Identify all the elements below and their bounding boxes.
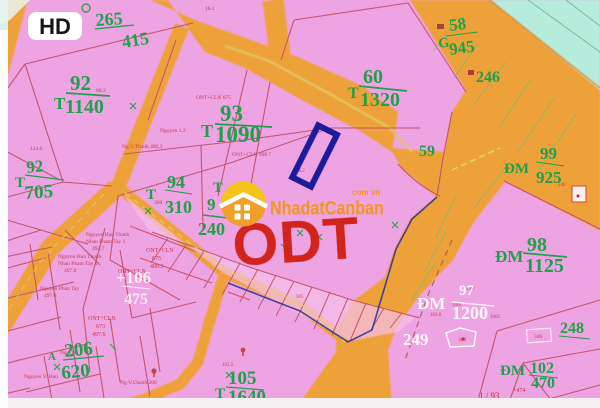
svg-text:705: 705 bbox=[24, 181, 54, 204]
svg-text:305: 305 bbox=[296, 295, 304, 300]
svg-text:60: 60 bbox=[363, 66, 383, 88]
svg-text:Nguyen Phan Tay: Nguyen Phan Tay bbox=[40, 286, 79, 292]
svg-text:246: 246 bbox=[476, 69, 500, 86]
svg-text:105: 105 bbox=[228, 368, 257, 389]
svg-text:86.3: 86.3 bbox=[96, 88, 106, 94]
svg-text:92: 92 bbox=[25, 156, 44, 177]
svg-text:ONT+CLN: ONT+CLN bbox=[88, 316, 116, 322]
svg-text:Ng.V.Thanh 480.3: Ng.V.Thanh 480.3 bbox=[122, 144, 163, 150]
svg-text:240: 240 bbox=[198, 219, 225, 239]
svg-text:346: 346 bbox=[534, 334, 543, 340]
svg-text:58: 58 bbox=[448, 14, 467, 35]
svg-text:1320: 1320 bbox=[360, 89, 400, 111]
svg-text:ĐM: ĐM bbox=[504, 161, 529, 177]
svg-text:ĐM: ĐM bbox=[417, 294, 445, 313]
svg-text:Nhan Pham Tay 1: Nhan Pham Tay 1 bbox=[58, 261, 98, 267]
svg-text:1005: 1005 bbox=[490, 315, 501, 320]
svg-text:HD: HD bbox=[39, 14, 71, 39]
svg-text:124.6: 124.6 bbox=[30, 146, 43, 152]
svg-text:ONT+CLN: ONT+CLN bbox=[146, 248, 174, 254]
svg-text:+474: +474 bbox=[513, 388, 525, 394]
svg-text:480.3: 480.3 bbox=[150, 264, 164, 270]
svg-text:925: 925 bbox=[536, 168, 562, 187]
svg-text:1200: 1200 bbox=[452, 303, 488, 323]
svg-text:1125: 1125 bbox=[525, 255, 564, 277]
svg-text:com vn: com vn bbox=[352, 188, 380, 197]
svg-text:T: T bbox=[348, 85, 359, 102]
svg-text:59: 59 bbox=[419, 143, 435, 160]
svg-text:97: 97 bbox=[459, 283, 475, 299]
svg-text:94: 94 bbox=[167, 172, 185, 192]
svg-text:103.6: 103.6 bbox=[430, 313, 442, 318]
svg-text:16.1: 16.1 bbox=[205, 6, 215, 12]
svg-text:945: 945 bbox=[448, 37, 476, 59]
svg-text:Nguyen 1.2: Nguyen 1.2 bbox=[160, 128, 186, 134]
svg-text:415: 415 bbox=[120, 28, 150, 52]
svg-text:248: 248 bbox=[560, 320, 584, 337]
svg-text:249: 249 bbox=[403, 330, 429, 349]
svg-text:475: 475 bbox=[124, 291, 148, 308]
svg-text:ĐM: ĐM bbox=[500, 363, 525, 379]
svg-text:620: 620 bbox=[60, 360, 91, 384]
svg-text:ĐM: ĐM bbox=[495, 247, 523, 266]
svg-text:92: 92 bbox=[70, 71, 91, 95]
svg-text:497.6: 497.6 bbox=[92, 332, 106, 338]
svg-text:Nhan Pham Tay 1: Nhan Pham Tay 1 bbox=[86, 239, 126, 245]
svg-text:497.6: 497.6 bbox=[44, 293, 57, 299]
svg-text:+106: +106 bbox=[116, 268, 151, 287]
svg-text:ONT+CLN 308.7: ONT+CLN 308.7 bbox=[232, 152, 271, 158]
svg-text:A: A bbox=[48, 351, 56, 363]
svg-text:675: 675 bbox=[152, 256, 161, 262]
svg-text:Nguyen Hau Thanh: Nguyen Hau Thanh bbox=[86, 232, 130, 238]
svg-text:T: T bbox=[146, 187, 156, 203]
svg-text:Nguyen V. Hau: Nguyen V. Hau bbox=[24, 374, 58, 380]
svg-text:310: 310 bbox=[165, 197, 192, 217]
svg-text:T: T bbox=[213, 180, 223, 196]
svg-text:492.7: 492.7 bbox=[92, 246, 105, 252]
svg-text:1140: 1140 bbox=[65, 96, 104, 118]
svg-text:99: 99 bbox=[540, 144, 557, 163]
svg-text:Ng.V.Chanh 200: Ng.V.Chanh 200 bbox=[120, 380, 157, 386]
svg-text:NhadatCanban: NhadatCanban bbox=[270, 197, 384, 219]
svg-text:T: T bbox=[201, 121, 213, 141]
svg-text:Nguyen Hau Thanh: Nguyen Hau Thanh bbox=[58, 254, 102, 260]
svg-text:1090: 1090 bbox=[215, 122, 261, 147]
svg-text:9: 9 bbox=[207, 195, 216, 214]
svg-text:470: 470 bbox=[531, 375, 555, 392]
svg-text:98: 98 bbox=[527, 234, 547, 256]
svg-text:673: 673 bbox=[96, 324, 105, 330]
svg-text:497.6: 497.6 bbox=[64, 268, 77, 274]
